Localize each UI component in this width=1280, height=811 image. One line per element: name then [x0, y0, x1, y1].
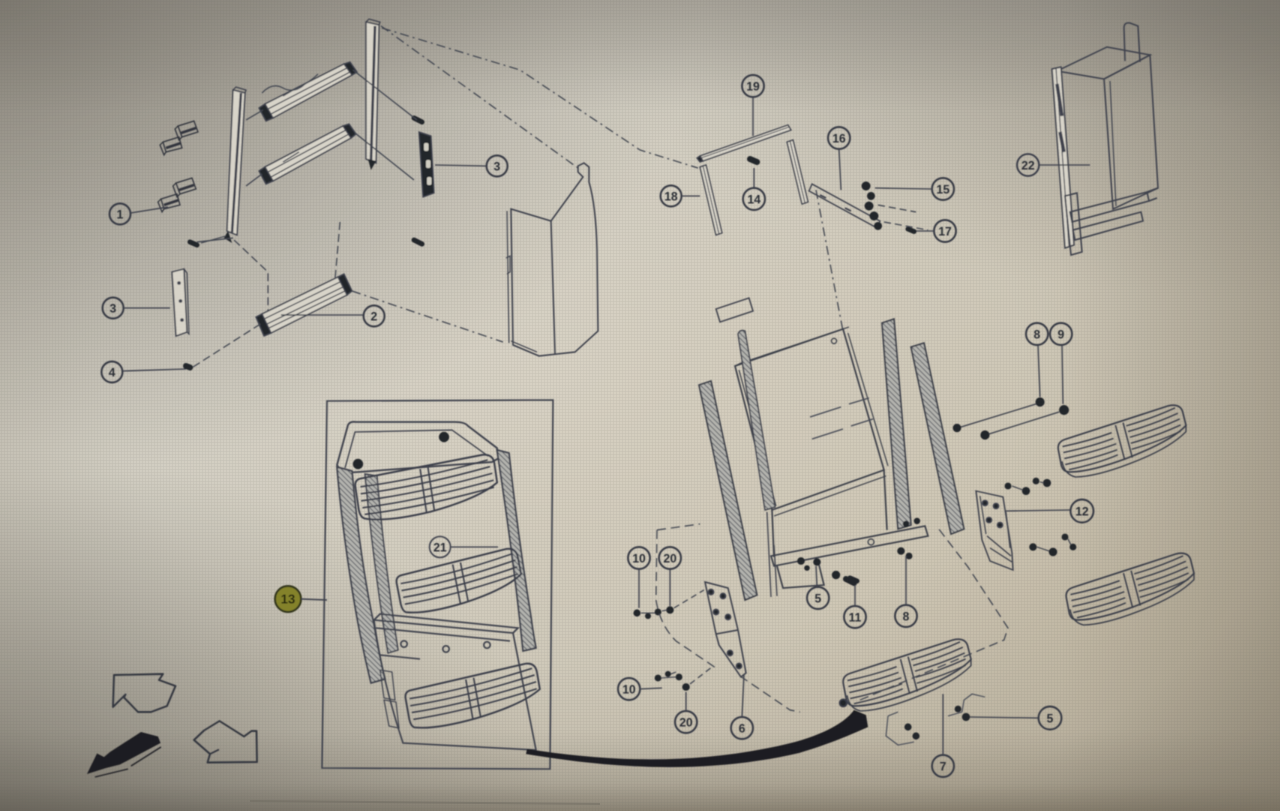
svg-text:10: 10 — [632, 552, 646, 566]
svg-text:9: 9 — [1058, 328, 1065, 342]
svg-text:17: 17 — [938, 225, 952, 239]
svg-text:4: 4 — [109, 366, 116, 380]
svg-text:22: 22 — [1021, 159, 1035, 173]
svg-text:15: 15 — [936, 183, 950, 197]
svg-text:19: 19 — [746, 80, 760, 94]
svg-text:10: 10 — [622, 683, 636, 697]
svg-text:6: 6 — [739, 722, 746, 736]
svg-text:12: 12 — [1075, 505, 1089, 519]
svg-text:1: 1 — [117, 208, 124, 222]
svg-text:20: 20 — [679, 716, 693, 730]
svg-text:14: 14 — [747, 193, 761, 207]
svg-text:13: 13 — [281, 592, 295, 607]
svg-text:7: 7 — [940, 760, 947, 774]
svg-text:11: 11 — [849, 611, 862, 625]
svg-text:20: 20 — [663, 552, 677, 566]
svg-text:3: 3 — [494, 160, 501, 174]
svg-text:3: 3 — [110, 302, 117, 316]
svg-text:18: 18 — [664, 190, 678, 204]
svg-text:5: 5 — [815, 592, 822, 606]
svg-text:5: 5 — [1047, 712, 1054, 726]
svg-text:8: 8 — [903, 610, 910, 624]
svg-text:16: 16 — [832, 132, 846, 146]
svg-text:21: 21 — [433, 541, 447, 555]
svg-text:8: 8 — [1034, 328, 1041, 342]
svg-text:2: 2 — [371, 310, 378, 324]
